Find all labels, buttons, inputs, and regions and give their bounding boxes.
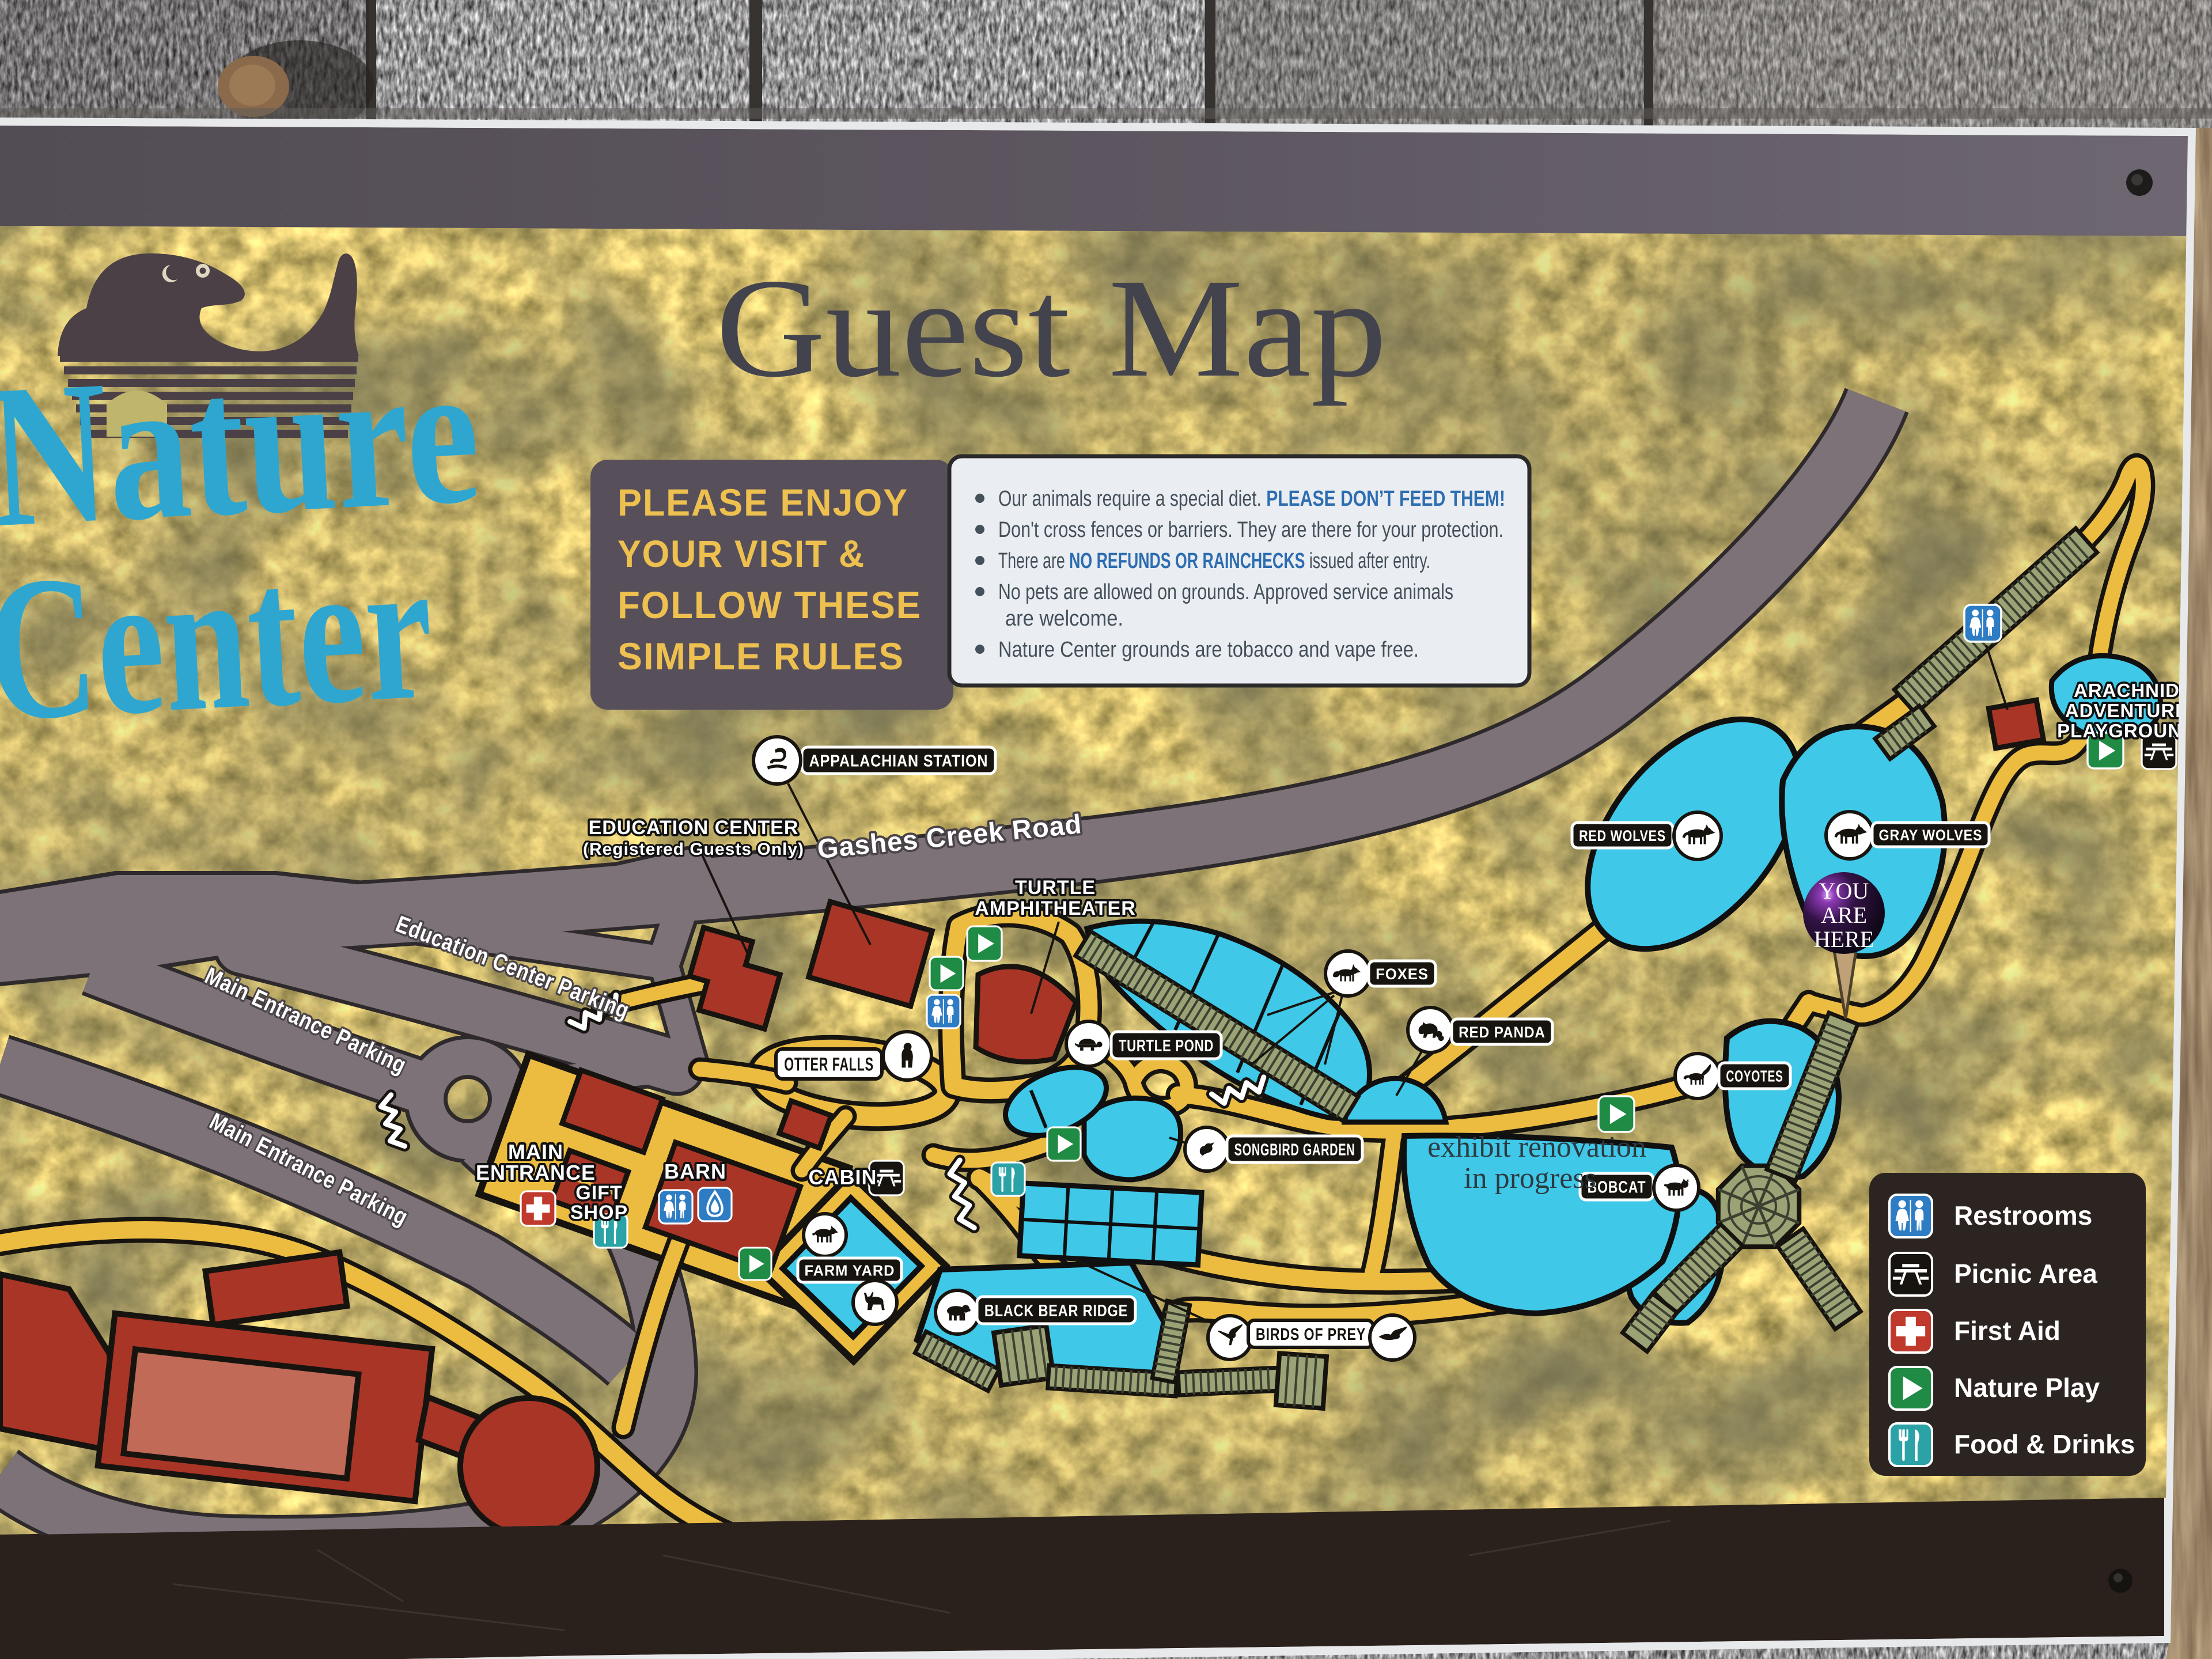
- svg-text:RED PANDA: RED PANDA: [1459, 1023, 1546, 1041]
- svg-text:COYOTES: COYOTES: [1726, 1067, 1783, 1085]
- svg-text:FOLLOW THESE: FOLLOW THESE: [618, 584, 922, 626]
- svg-text:Nature Play: Nature Play: [1954, 1373, 2100, 1403]
- svg-text:ENTRANCE: ENTRANCE: [476, 1161, 596, 1184]
- svg-text:AMPHITHEATER: AMPHITHEATER: [975, 897, 1136, 919]
- svg-text:in progress: in progress: [1464, 1162, 1596, 1195]
- svg-text:EDUCATION CENTER: EDUCATION CENTER: [589, 817, 799, 839]
- svg-text:Picnic Area: Picnic Area: [1954, 1259, 2097, 1289]
- svg-text:Don't cross fences or barriers: Don't cross fences or barriers. They are…: [998, 518, 1503, 542]
- svg-text:MAIN: MAIN: [508, 1140, 563, 1164]
- svg-text:CABIN: CABIN: [809, 1165, 877, 1189]
- svg-text:BARN: BARN: [664, 1160, 726, 1183]
- svg-text:BIRDS OF PREY: BIRDS OF PREY: [1256, 1325, 1366, 1344]
- svg-text:OTTER FALLS: OTTER FALLS: [784, 1054, 873, 1075]
- svg-text:GIFT: GIFT: [575, 1182, 622, 1204]
- svg-text:FARM YARD: FARM YARD: [805, 1262, 895, 1279]
- svg-text:exhibit renovation: exhibit renovation: [1427, 1131, 1646, 1164]
- svg-text:are welcome.: are welcome.: [1005, 607, 1123, 631]
- svg-text:TURTLE POND: TURTLE POND: [1119, 1037, 1214, 1055]
- svg-text:SIMPLE RULES: SIMPLE RULES: [618, 635, 904, 677]
- svg-text:PLEASE ENJOY: PLEASE ENJOY: [618, 481, 908, 524]
- svg-text:RED WOLVES: RED WOLVES: [1579, 827, 1666, 844]
- svg-text:ARE: ARE: [1821, 902, 1867, 928]
- svg-text:FOXES: FOXES: [1376, 965, 1429, 983]
- svg-text:Center: Center: [0, 514, 438, 764]
- svg-text:HERE: HERE: [1814, 926, 1874, 952]
- svg-text:Nature Center grounds are toba: Nature Center grounds are tobacco and va…: [998, 638, 1419, 662]
- svg-text:Our animals require a special: Our animals require a special diet. PLEA…: [998, 487, 1505, 511]
- svg-text:APPALACHIAN STATION: APPALACHIAN STATION: [809, 752, 988, 770]
- svg-text:(Registered Guests Only): (Registered Guests Only): [583, 840, 804, 859]
- svg-text:PLAYGROUND: PLAYGROUND: [2057, 720, 2196, 741]
- svg-text:YOUR VISIT &: YOUR VISIT &: [618, 532, 865, 575]
- svg-text:TURTLE: TURTLE: [1015, 877, 1096, 899]
- svg-text:First Aid: First Aid: [1954, 1316, 2061, 1346]
- svg-text:There are NO REFUNDS OR RAINCH: There are NO REFUNDS OR RAINCHECKS issue…: [998, 549, 1430, 573]
- svg-text:SONGBIRD GARDEN: SONGBIRD GARDEN: [1234, 1141, 1355, 1159]
- svg-text:Guest Map: Guest Map: [716, 250, 1387, 407]
- svg-text:GRAY WOLVES: GRAY WOLVES: [1879, 826, 1983, 843]
- svg-text:BLACK BEAR RIDGE: BLACK BEAR RIDGE: [984, 1302, 1128, 1320]
- svg-text:No pets are allowed on grounds: No pets are allowed on grounds. Approved…: [998, 580, 1453, 604]
- svg-text:Restrooms: Restrooms: [1954, 1200, 2092, 1230]
- svg-text:YOU: YOU: [1819, 878, 1869, 904]
- svg-text:ARACHNID: ARACHNID: [2074, 680, 2180, 701]
- svg-text:SHOP: SHOP: [570, 1202, 628, 1224]
- svg-text:BOBCAT: BOBCAT: [1588, 1178, 1646, 1196]
- svg-text:ADVENTURE: ADVENTURE: [2065, 700, 2188, 721]
- svg-text:Food & Drinks: Food & Drinks: [1954, 1429, 2135, 1459]
